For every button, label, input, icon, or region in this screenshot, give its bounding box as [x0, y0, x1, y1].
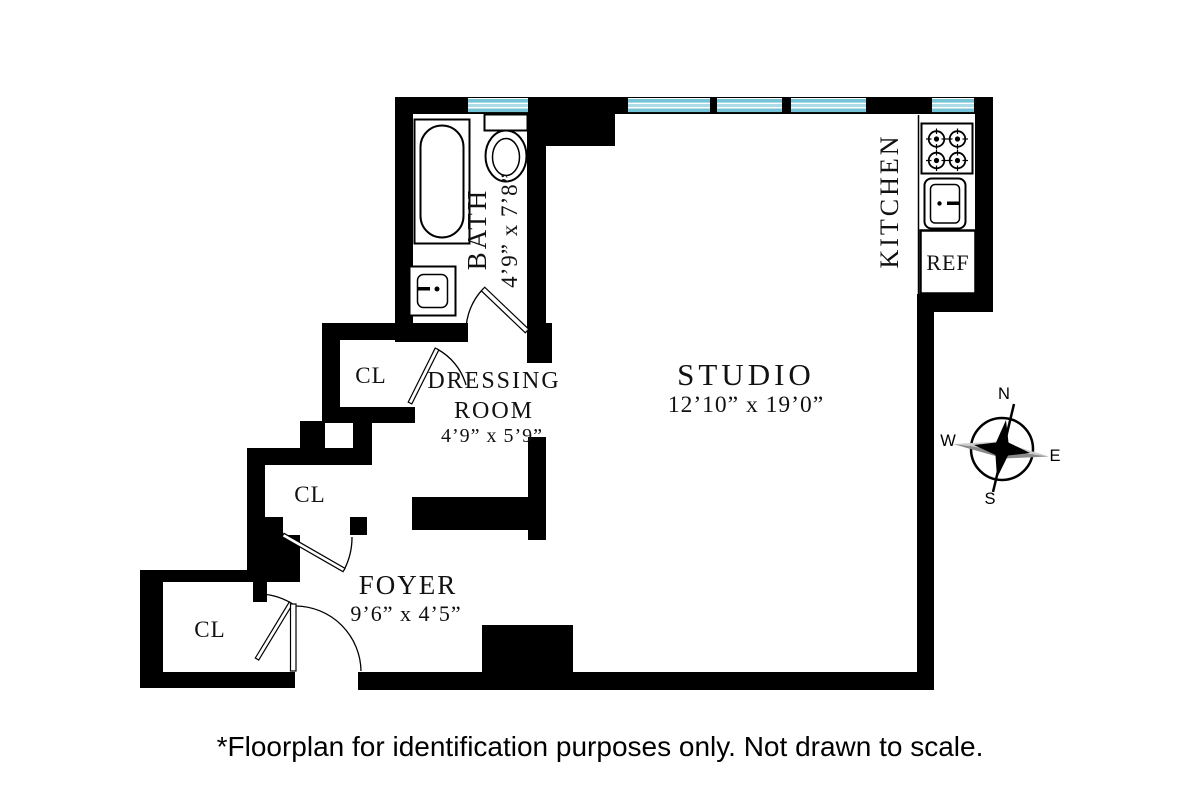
closet-dressing-label: CL [355, 363, 386, 388]
closet-foyer-lower-label: CL [194, 617, 225, 642]
wall-cl1-bottom [322, 407, 415, 423]
stove-icon [922, 124, 973, 174]
window-glass [628, 109, 710, 113]
wall-cl2-bottom-left [247, 517, 283, 535]
walls [140, 97, 993, 690]
wall-column [482, 625, 573, 673]
wall-studio-right [917, 294, 934, 690]
dressing-room-dims: 4’9” x 5’9” [441, 425, 543, 447]
wall-bath-door-post [527, 323, 552, 363]
compass-north-label: N [998, 385, 1010, 403]
toilet-bowl-inner-icon [493, 139, 520, 176]
bath-door-leaf [481, 287, 528, 333]
compass-rose: N S W E [940, 385, 1060, 508]
bathtub-basin-icon [421, 126, 464, 238]
window-glass [791, 99, 866, 103]
window-glass [468, 104, 528, 107]
compass-west-label: W [940, 432, 956, 450]
wall-cl3-left [140, 570, 163, 687]
wall-dressing-bottom [412, 497, 546, 530]
kitchen-drain-icon [937, 201, 941, 205]
refrigerator-label: REF [926, 250, 969, 275]
toilet-tank-icon [485, 115, 528, 131]
floorplan-drawing: N S W E BATH 4’9” x 7’8” KITCHEN REF STU… [0, 0, 1200, 800]
window-glass [717, 109, 782, 113]
foyer-label: FOYER [359, 570, 458, 600]
bath-dims: 4’9” x 7’8” [497, 172, 522, 288]
dressing-room-label-line1: DRESSING [427, 368, 560, 394]
dressing-room-label-line2: ROOM [454, 398, 534, 424]
kitchen-faucet-icon [947, 202, 960, 206]
window-glass [932, 104, 974, 107]
wall-cl3-right-stub [253, 582, 267, 602]
window-glass [468, 109, 528, 113]
wall-cl2-bottom-post [350, 517, 367, 535]
window-glass [628, 104, 710, 107]
room-labels: BATH 4’9” x 7’8” KITCHEN REF STUDIO 12’1… [194, 133, 969, 642]
studio-label: STUDIO [677, 357, 815, 392]
window-glass [791, 104, 866, 107]
window-glass [628, 99, 710, 103]
compass-south-label: S [984, 490, 995, 508]
closet-foyer-upper-label: CL [294, 482, 325, 507]
window-glass [791, 109, 866, 113]
floorplan-canvas: N S W E BATH 4’9” x 7’8” KITCHEN REF STU… [0, 0, 1200, 800]
bath-door-arc [466, 289, 483, 331]
cl3-door-leaf [255, 602, 292, 660]
compass-east-label: E [1049, 447, 1060, 465]
window-glass [932, 109, 974, 113]
wall-bottom-main [358, 672, 934, 690]
window-glass [468, 99, 528, 103]
cl2-door-arc [344, 537, 352, 570]
wall-bottom-left [140, 672, 295, 688]
kitchen-label: KITCHEN [875, 133, 904, 268]
bath-sink-basin-icon [418, 275, 448, 308]
window-glass [932, 99, 974, 103]
disclaimer-text: *Floorplan for identification purposes o… [0, 731, 1200, 763]
entry-door-leaf [291, 604, 297, 671]
bath-drain-icon [435, 287, 440, 292]
studio-dims: 12’10” x 19’0” [668, 392, 824, 418]
bath-label: BATH [462, 188, 492, 271]
wall-kitchen-right [975, 97, 993, 312]
bath-faucet-icon [418, 287, 430, 291]
window-glass [717, 99, 782, 103]
foyer-dims: 9’6” x 4’5” [350, 601, 461, 626]
window-glass [717, 104, 782, 107]
